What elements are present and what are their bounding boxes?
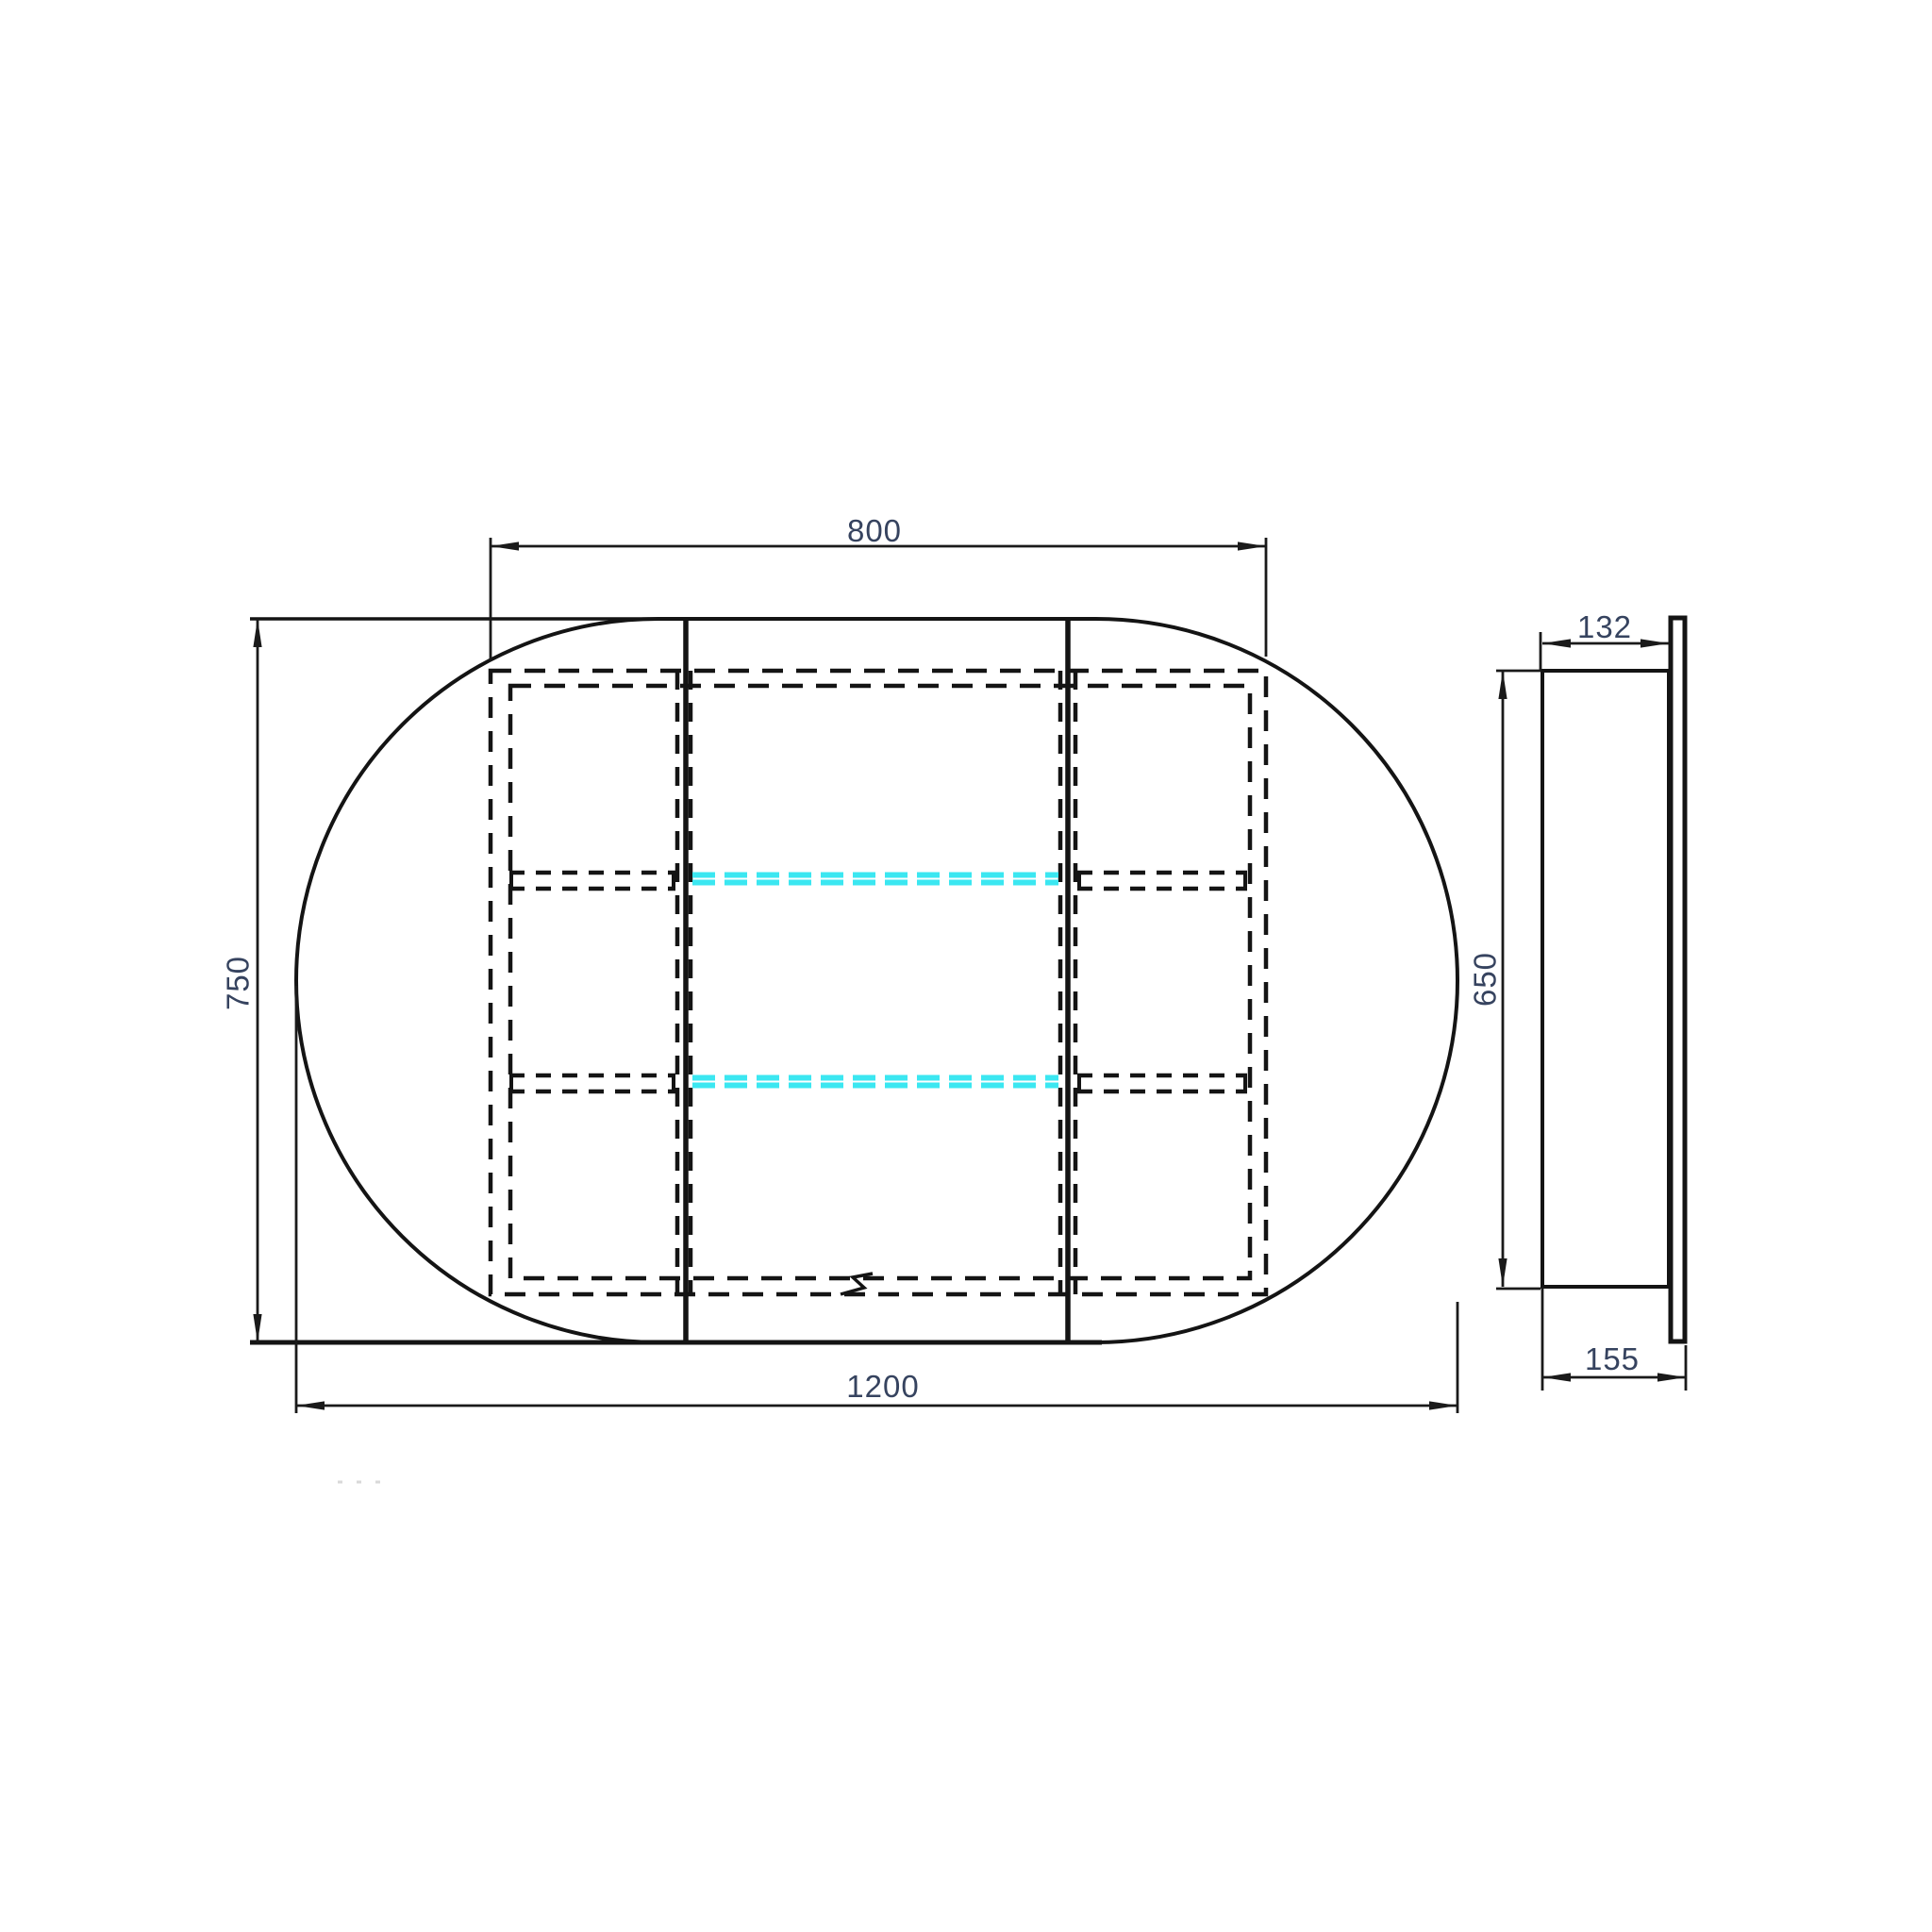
dimension-650: 650 <box>1468 671 1542 1289</box>
side-view: 132 650 155 <box>1468 609 1687 1391</box>
dimension-1200: 1200 <box>296 986 1457 1413</box>
dimension-155: 155 <box>1542 1287 1686 1391</box>
front-view: 800 750 1200 <box>221 513 1458 1482</box>
cabinet-carcass-outer-dashed <box>491 671 1266 1294</box>
shelf-row-upper <box>509 871 1247 891</box>
dim-155-label: 155 <box>1585 1341 1640 1376</box>
dim-132-label: 132 <box>1577 609 1632 644</box>
side-cabinet-box <box>1542 671 1669 1287</box>
dim-750-label: 750 <box>221 956 256 1010</box>
dimension-750: 750 <box>221 619 258 1342</box>
dim-1200-label: 1200 <box>846 1369 919 1404</box>
dim-800-label: 800 <box>847 513 902 548</box>
cabinet-carcass-inner-dashed <box>510 686 1250 1278</box>
shelf-row-lower <box>509 1074 1247 1093</box>
mirror-oval-outline <box>296 619 1457 1342</box>
dim-650-label: 650 <box>1468 952 1503 1007</box>
glass-shelf-lines <box>692 875 1058 1086</box>
dimension-132: 132 <box>1541 609 1669 671</box>
mirror-cabinet-drawing: 800 750 1200 132 <box>0 0 1932 1932</box>
side-mirror-panel <box>1671 618 1685 1341</box>
dimension-800: 800 <box>491 513 1266 660</box>
technical-drawing-page: 800 750 1200 132 <box>0 0 1932 1932</box>
